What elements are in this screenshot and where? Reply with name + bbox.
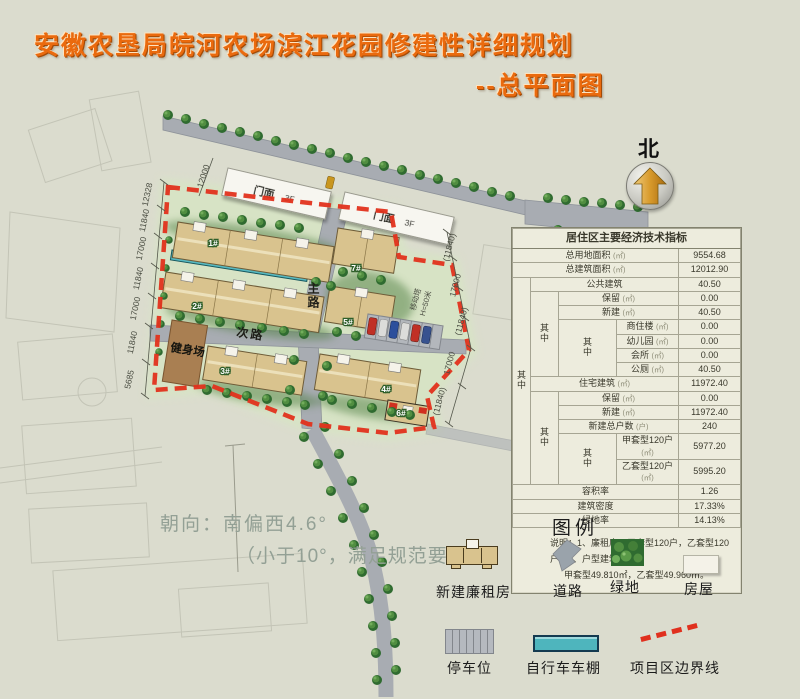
tree-icon — [325, 148, 335, 158]
legend-label-shed: 自行车车棚 — [526, 658, 601, 678]
tree-icon — [313, 459, 323, 469]
row-label: 公共建筑 — [531, 277, 679, 291]
tree-icon — [405, 410, 415, 420]
row-label: 新建 (㎡) — [559, 306, 679, 320]
tree-icon — [367, 403, 377, 413]
legend-label-parking: 停车位 — [447, 658, 492, 678]
subgroup-label: 其中 — [531, 391, 559, 485]
row-value: 9554.68 — [679, 249, 741, 263]
row-value: 5995.20 — [679, 459, 741, 485]
row-label: 容积率 — [513, 485, 679, 499]
subgroup-label: 其中 — [513, 277, 531, 485]
row-label: 总建筑面积 (㎡) — [513, 263, 679, 277]
tree-icon — [433, 174, 443, 184]
row-value: 12012.90 — [679, 263, 741, 277]
row-value: 0.00 — [679, 334, 741, 348]
tree-icon — [451, 178, 461, 188]
dim-left-6: 5685 — [122, 369, 136, 390]
parking-icon — [445, 629, 494, 654]
orientation-line1: 朝向：南偏西4.6° — [160, 513, 328, 535]
row-value: 0.00 — [679, 291, 741, 305]
dim-left-5: 11840 — [125, 330, 140, 355]
tree-icon — [505, 191, 515, 201]
page: { "page": { "title": "安徽农垦局皖河农场滨江花园修建性详细… — [0, 0, 800, 699]
row-value: 11972.40 — [679, 405, 741, 419]
tree-icon — [253, 131, 263, 141]
building-label-7: 7# — [351, 263, 361, 273]
row-label: 总用地面积 (㎡) — [513, 249, 679, 263]
tree-icon — [262, 394, 272, 404]
tree-icon — [235, 127, 245, 137]
tree-icon — [327, 395, 337, 405]
row-value: 5977.20 — [679, 434, 741, 460]
subgroup-label: 其中 — [531, 291, 559, 377]
tree-icon — [289, 355, 299, 365]
house-icon — [683, 555, 719, 574]
legend-label-road: 道路 — [553, 581, 583, 601]
tree-icon — [361, 157, 371, 167]
tree-icon — [579, 197, 589, 207]
tree-icon — [469, 182, 479, 192]
row-label: 新建总户数 (户) — [559, 420, 679, 434]
tree-icon — [199, 119, 209, 129]
tree-icon — [299, 329, 309, 339]
car — [325, 176, 335, 189]
row-value: 40.50 — [679, 306, 741, 320]
page-title: 安徽农垦局皖河农场滨江花园修建性详细规划 — [34, 26, 574, 62]
tree-icon — [397, 165, 407, 175]
tree-icon — [237, 215, 247, 225]
row-label: 保留 (㎡) — [559, 391, 679, 405]
tree-icon — [332, 327, 342, 337]
table-title: 居住区主要经济技术指标 — [513, 229, 741, 249]
tree-icon — [338, 513, 348, 523]
tree-icon — [369, 530, 379, 540]
subgroup-label: 其中 — [559, 320, 617, 377]
dim-left-0: 12328 — [140, 182, 155, 207]
road-icon — [549, 537, 587, 575]
tree-icon — [615, 200, 625, 210]
tree-icon — [195, 314, 205, 324]
dim-left-2: 17000 — [134, 236, 149, 261]
tree-icon — [199, 210, 209, 220]
lowrent-housing-icon — [444, 538, 502, 572]
tree-icon — [597, 198, 607, 208]
tree-icon — [371, 648, 381, 658]
indicator-table-grid: 居住区主要经济技术指标 总用地面积 (㎡) 9554.68 总建筑面积 (㎡) … — [512, 228, 741, 528]
row-label: 建筑密度 — [513, 499, 679, 513]
tree-icon — [347, 476, 357, 486]
tree-icon — [271, 136, 281, 146]
north-label: 北 — [638, 133, 659, 163]
row-value: 40.50 — [679, 277, 741, 291]
row-label: 会所 (㎡) — [617, 348, 679, 362]
dim-left-4: 17000 — [128, 296, 143, 321]
tree-icon — [218, 212, 228, 222]
legend-label-green: 绿地 — [610, 577, 640, 597]
row-value: 240 — [679, 420, 741, 434]
tree-icon — [307, 144, 317, 154]
subgroup-label: 其中 — [559, 434, 617, 485]
tree-icon — [338, 267, 348, 277]
tree-icon — [285, 385, 295, 395]
tree-icon — [175, 311, 185, 321]
row-value: 0.00 — [679, 348, 741, 362]
row-value: 0.00 — [679, 320, 741, 334]
tree-icon — [180, 207, 190, 217]
tree-icon — [215, 317, 225, 327]
tree-icon — [322, 361, 332, 371]
tree-icon — [351, 331, 361, 341]
row-value: 40.50 — [679, 363, 741, 377]
tree-icon — [347, 399, 357, 409]
tree-icon — [364, 594, 374, 604]
row-value: 1.26 — [679, 485, 741, 499]
tree-icon — [181, 114, 191, 124]
row-value: 0.00 — [679, 391, 741, 405]
building-label-1: 1# — [208, 238, 218, 248]
dim-left-1: 11840 — [137, 208, 152, 233]
tree-icon — [279, 326, 289, 336]
row-label: 新建 (㎡) — [559, 405, 679, 419]
tree-icon — [368, 621, 378, 631]
green-space-icon — [611, 539, 644, 566]
tree-icon — [487, 187, 497, 197]
row-label: 住宅建筑 (㎡) — [531, 377, 679, 391]
tree-icon — [383, 584, 393, 594]
page-subtitle: --总平面图 — [476, 66, 605, 102]
tree-icon — [543, 193, 553, 203]
tree-icon — [390, 638, 400, 648]
tree-icon — [294, 223, 304, 233]
road-stub — [426, 424, 520, 452]
tree-icon — [391, 665, 401, 675]
tree-icon — [275, 220, 285, 230]
tree-icon — [326, 281, 336, 291]
tree-icon — [561, 195, 571, 205]
building-label-4: 4# — [381, 384, 391, 394]
tree-icon — [282, 397, 292, 407]
tree-icon — [379, 161, 389, 171]
dim-left-3: 11840 — [131, 266, 146, 291]
tree-icon — [300, 400, 310, 410]
row-label: 商住楼 (㎡) — [617, 320, 679, 334]
building-label-6: 6# — [396, 408, 406, 418]
tree-icon — [359, 503, 369, 513]
tree-icon — [163, 110, 173, 120]
legend-title: 图例 — [552, 513, 598, 540]
tree-icon — [256, 218, 266, 228]
row-label: 乙套型120户 (㎡) — [617, 459, 679, 485]
building-label-3: 3# — [220, 366, 230, 376]
building-label-2: 2# — [192, 301, 202, 311]
legend-label-boundary: 项目区边界线 — [630, 658, 720, 678]
row-label: 保留 (㎡) — [559, 291, 679, 305]
tree-icon — [217, 123, 227, 133]
main-road-label: 主路 — [306, 281, 320, 310]
tree-icon — [289, 140, 299, 150]
row-label: 幼儿园 (㎡) — [617, 334, 679, 348]
legend-label-lowrent: 新建廉租房 — [436, 582, 511, 602]
tree-icon — [326, 486, 336, 496]
tree-icon — [376, 275, 386, 285]
row-value: 14.13% — [679, 513, 741, 527]
tree-icon — [318, 391, 328, 401]
row-label: 公厕 (㎡) — [617, 363, 679, 377]
row-label: 甲套型120户 (㎡) — [617, 434, 679, 460]
tree-icon — [357, 567, 367, 577]
building-label-5: 5# — [343, 317, 353, 327]
tree-icon — [334, 449, 344, 459]
legend-label-house: 房屋 — [684, 579, 714, 599]
row-value: 17.33% — [679, 499, 741, 513]
tree-icon — [343, 153, 353, 163]
tree-icon — [372, 675, 382, 685]
tree-icon — [387, 611, 397, 621]
tree-icon — [415, 170, 425, 180]
row-value: 11972.40 — [679, 377, 741, 391]
north-arrow — [626, 162, 674, 210]
north-arrow-icon — [627, 163, 673, 209]
tree-icon — [299, 432, 309, 442]
bicycle-shed-icon — [533, 635, 599, 652]
